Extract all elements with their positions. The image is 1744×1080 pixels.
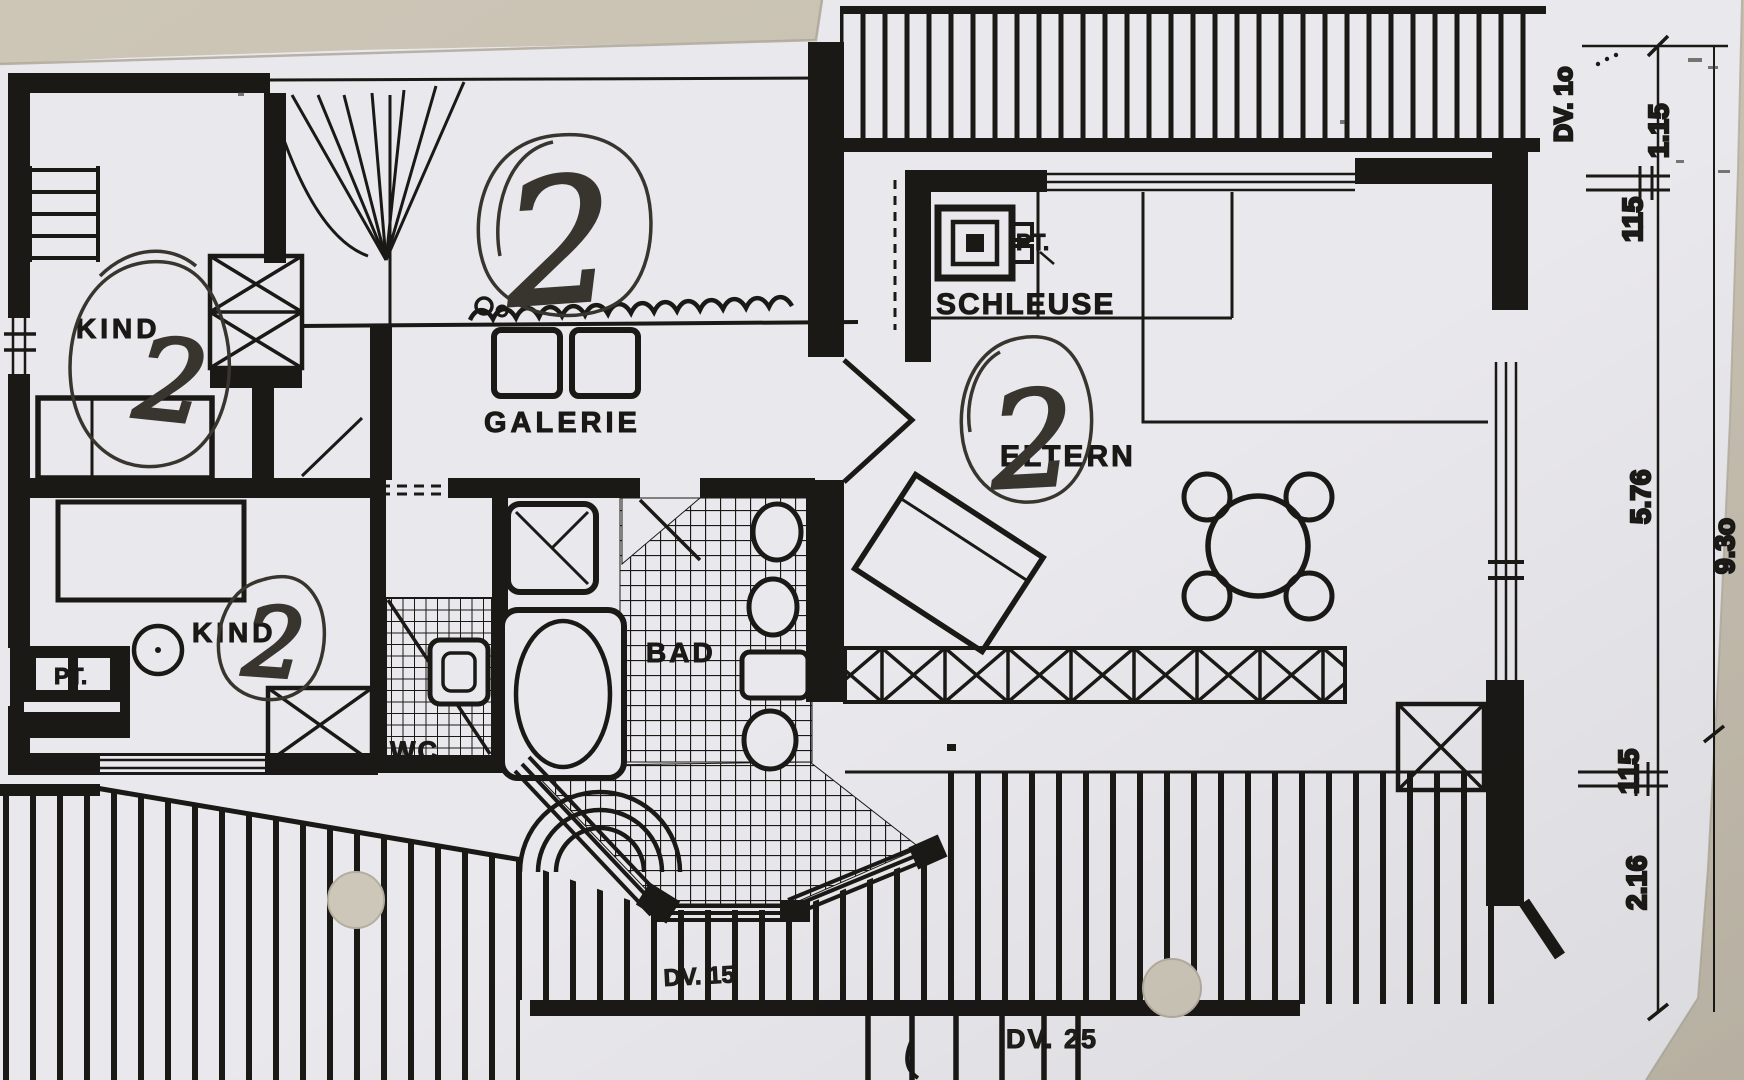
floor-plan-drawing: KIND KIND PT. — [0, 0, 1744, 1080]
photo-shading — [0, 0, 1744, 1080]
floor-plan-photo: KIND KIND PT. — [0, 0, 1744, 1080]
